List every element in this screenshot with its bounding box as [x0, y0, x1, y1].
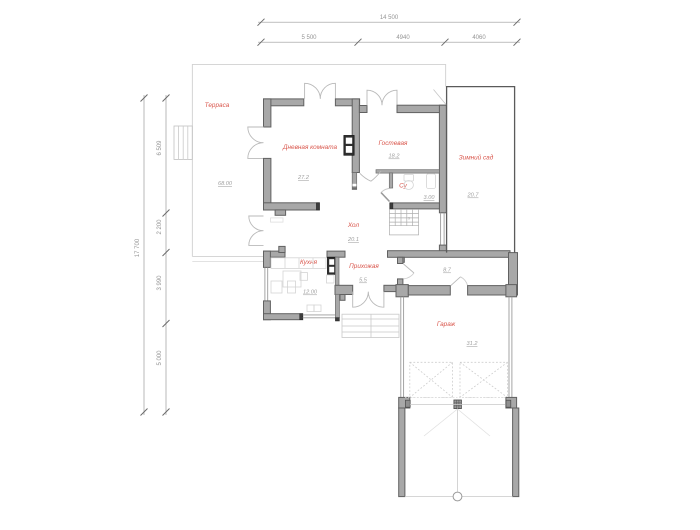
- svg-text:20.7: 20.7: [467, 193, 480, 199]
- svg-text:4060: 4060: [472, 35, 486, 41]
- svg-text:Кухня: Кухня: [300, 259, 318, 266]
- svg-text:14 500: 14 500: [380, 15, 399, 21]
- svg-text:Су: Су: [399, 183, 408, 190]
- svg-text:27.2: 27.2: [297, 175, 310, 181]
- svg-text:4940: 4940: [396, 35, 410, 41]
- svg-text:3 990: 3 990: [157, 275, 163, 291]
- svg-text:20.1: 20.1: [347, 237, 359, 243]
- svg-text:9: 9: [408, 217, 410, 221]
- svg-text:5 500: 5 500: [301, 35, 317, 41]
- svg-text:Дневная комната: Дневная комната: [282, 144, 337, 151]
- svg-text:Прихожая: Прихожая: [349, 263, 379, 270]
- svg-text:5 000: 5 000: [157, 350, 163, 366]
- svg-text:31.2: 31.2: [467, 341, 479, 347]
- svg-text:3.00: 3.00: [424, 195, 436, 201]
- svg-text:Терраса: Терраса: [205, 102, 230, 109]
- svg-text:12.00: 12.00: [303, 290, 318, 296]
- svg-text:Гостевая: Гостевая: [379, 140, 408, 147]
- svg-text:68.00: 68.00: [218, 181, 233, 187]
- svg-text:Гараж: Гараж: [437, 321, 456, 328]
- svg-text:Хол: Хол: [347, 222, 360, 229]
- svg-text:5.5: 5.5: [359, 278, 368, 284]
- svg-text:17 700: 17 700: [135, 238, 141, 257]
- svg-text:8.7: 8.7: [443, 268, 452, 274]
- svg-text:2 200: 2 200: [157, 219, 163, 235]
- svg-text:6 509: 6 509: [157, 140, 163, 156]
- svg-text:Зимний сад: Зимний сад: [459, 154, 494, 162]
- svg-text:18.2: 18.2: [389, 154, 401, 160]
